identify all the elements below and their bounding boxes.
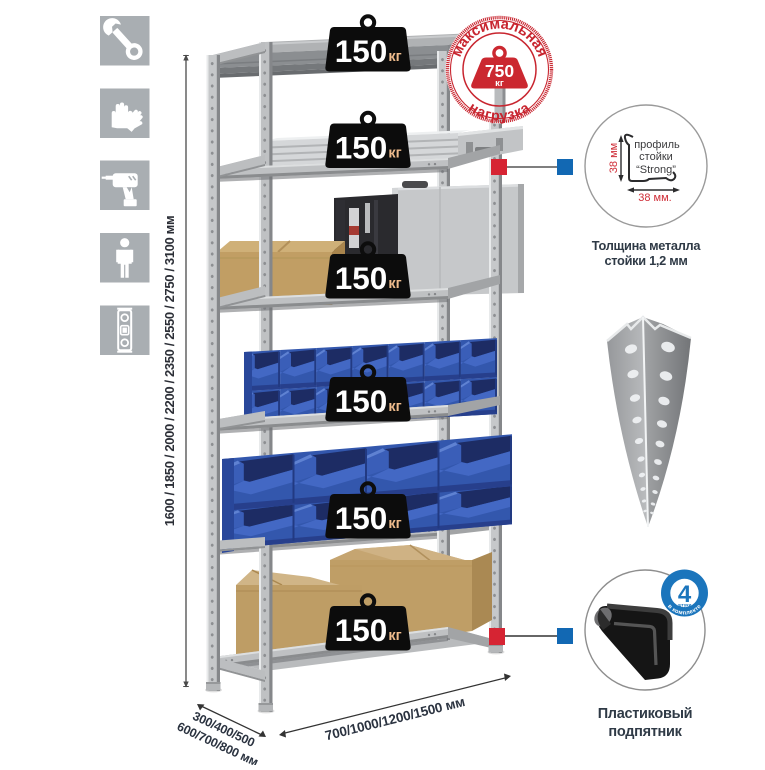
svg-text:кг: кг: [495, 78, 504, 89]
svg-text:стойки: стойки: [639, 151, 673, 163]
svg-text:Толщина металла: Толщина металла: [592, 238, 702, 253]
svg-text:штуки: штуки: [678, 603, 692, 608]
svg-text:150: 150: [335, 612, 388, 648]
svg-text:кг: кг: [388, 146, 401, 162]
svg-text:38 мм.: 38 мм.: [638, 192, 671, 204]
svg-text:подпятник: подпятник: [608, 724, 682, 740]
svg-text:Пластиковый: Пластиковый: [598, 706, 693, 722]
svg-text:150: 150: [335, 500, 388, 536]
svg-text:кг: кг: [388, 49, 401, 65]
svg-text:“Strong”: “Strong”: [636, 164, 676, 176]
svg-text:150: 150: [335, 383, 388, 419]
svg-text:кг: кг: [388, 516, 401, 532]
svg-text:150: 150: [335, 260, 388, 296]
svg-text:стойки 1,2 мм: стойки 1,2 мм: [604, 253, 687, 268]
svg-text:150: 150: [335, 130, 388, 166]
svg-text:кг: кг: [388, 276, 401, 292]
svg-text:1600 / 1850 / 2000 / 2200 / 23: 1600 / 1850 / 2000 / 2200 / 2350 / 2550 …: [162, 216, 177, 526]
svg-text:кг: кг: [388, 628, 401, 644]
svg-text:38 мм: 38 мм: [608, 143, 620, 173]
svg-text:150: 150: [335, 33, 388, 69]
svg-text:кг: кг: [388, 399, 401, 415]
svg-text:профиль: профиль: [634, 139, 680, 151]
